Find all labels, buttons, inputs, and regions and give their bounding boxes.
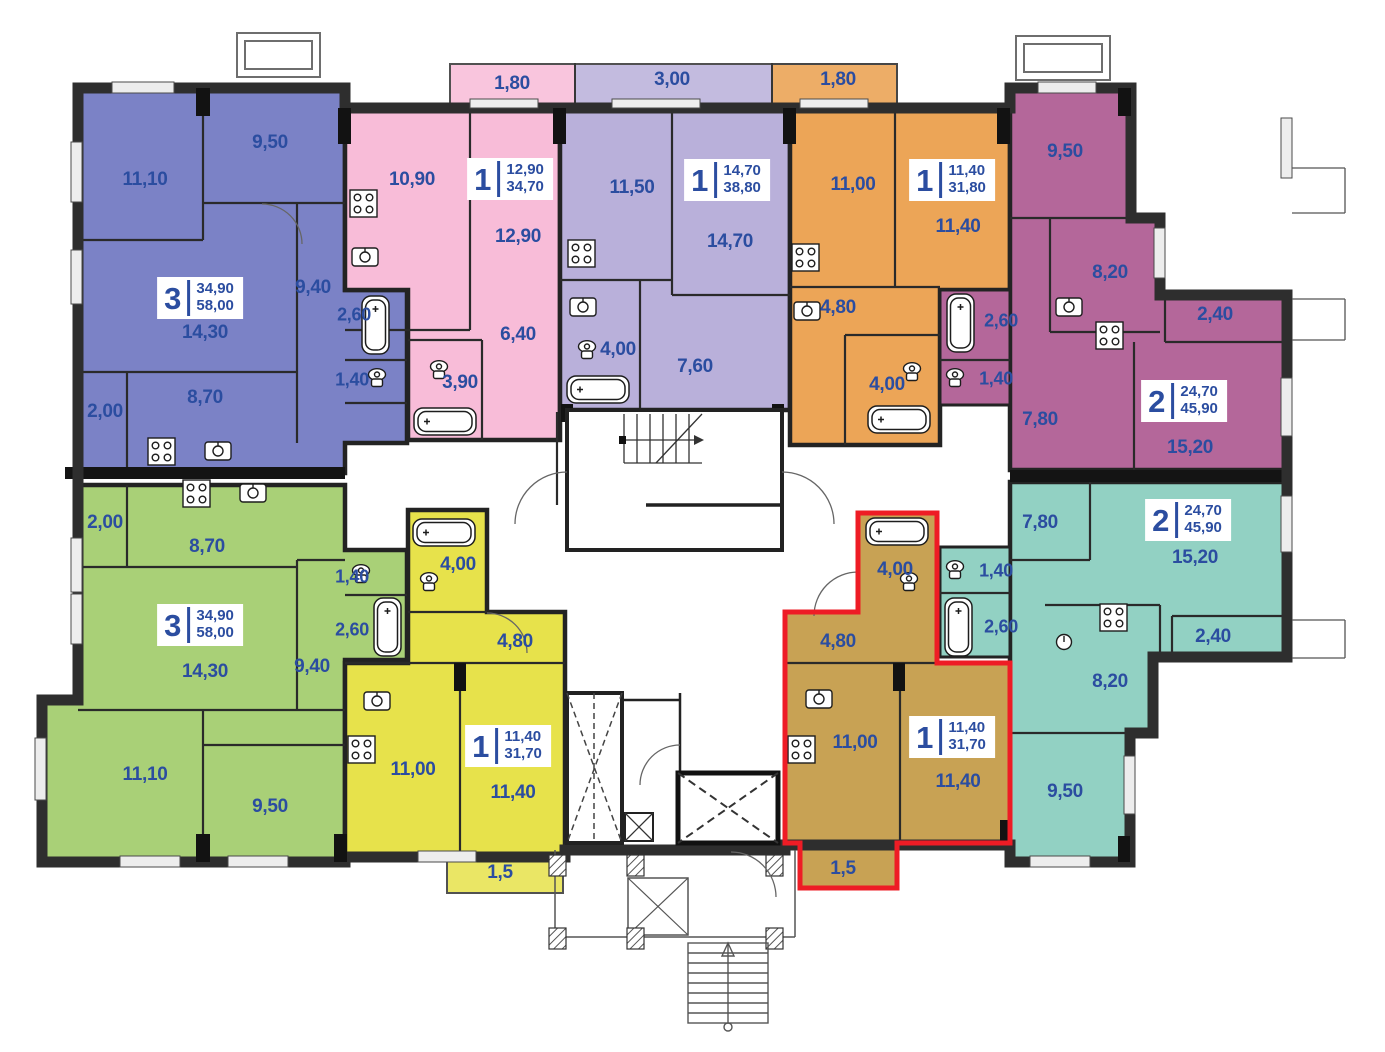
party-wall-right <box>1010 470 1287 482</box>
apartment-badge[interactable]: 1 11,4031,70 <box>465 725 551 767</box>
badge-room-count: 1 <box>916 722 933 753</box>
badge-divider <box>187 280 190 316</box>
badge-living-area: 24,70 <box>1184 503 1222 520</box>
badge-total-area: 31,70 <box>504 746 542 763</box>
apartment-badge[interactable]: 3 34,9058,00 <box>157 604 243 646</box>
badge-divider <box>495 728 498 764</box>
balcony-tan <box>800 845 897 888</box>
badge-living-area: 12,90 <box>506 162 544 179</box>
badge-total-area: 38,80 <box>723 180 761 197</box>
badge-room-count: 2 <box>1148 386 1165 417</box>
apartment-badge[interactable]: 1 12,9034,70 <box>467 158 553 200</box>
badge-divider <box>1175 502 1178 538</box>
badge-divider <box>1171 383 1174 419</box>
badge-divider <box>497 161 500 197</box>
badge-total-area: 58,00 <box>196 625 234 642</box>
elevator-core <box>567 693 778 843</box>
apartment-badge[interactable]: 1 14,7038,80 <box>684 159 770 201</box>
badge-living-area: 14,70 <box>723 163 761 180</box>
badge-room-count: 1 <box>916 165 933 196</box>
stairwell <box>567 410 782 550</box>
badge-divider <box>187 607 190 643</box>
apartment-badge[interactable]: 1 11,4031,80 <box>909 159 995 201</box>
badge-living-area: 34,90 <box>196 281 234 298</box>
badge-total-area: 34,70 <box>506 179 544 196</box>
badge-living-area: 34,90 <box>196 608 234 625</box>
badge-room-count: 2 <box>1152 505 1169 536</box>
party-wall-left <box>65 467 345 479</box>
chimney-right <box>1016 36 1110 80</box>
badge-room-count: 1 <box>472 731 489 762</box>
badge-living-area: 11,40 <box>504 729 542 746</box>
apartment-badge[interactable]: 2 24,7045,90 <box>1141 380 1227 422</box>
apartment-badge[interactable]: 2 24,7045,90 <box>1145 499 1231 541</box>
badge-divider <box>714 162 717 198</box>
badge-total-area: 31,80 <box>948 180 986 197</box>
balcony-railings <box>1292 168 1345 658</box>
badge-total-area: 31,70 <box>948 737 986 754</box>
badge-living-area: 11,40 <box>948 720 986 737</box>
entrance-porch <box>555 850 795 937</box>
badge-room-count: 3 <box>164 610 181 641</box>
badge-total-area: 45,90 <box>1180 401 1218 418</box>
badge-living-area: 24,70 <box>1180 384 1218 401</box>
chimney-left <box>237 33 320 77</box>
badge-room-count: 1 <box>691 165 708 196</box>
apartment-badge[interactable]: 3 34,9058,00 <box>157 277 243 319</box>
badge-room-count: 1 <box>474 164 491 195</box>
badge-divider <box>939 719 942 755</box>
apartment-badge-selected[interactable]: 1 11,4031,70 <box>909 716 995 758</box>
badge-room-count: 3 <box>164 283 181 314</box>
badge-total-area: 45,90 <box>1184 520 1222 537</box>
badge-divider <box>939 162 942 198</box>
badge-living-area: 11,40 <box>948 163 986 180</box>
badge-total-area: 58,00 <box>196 298 234 315</box>
